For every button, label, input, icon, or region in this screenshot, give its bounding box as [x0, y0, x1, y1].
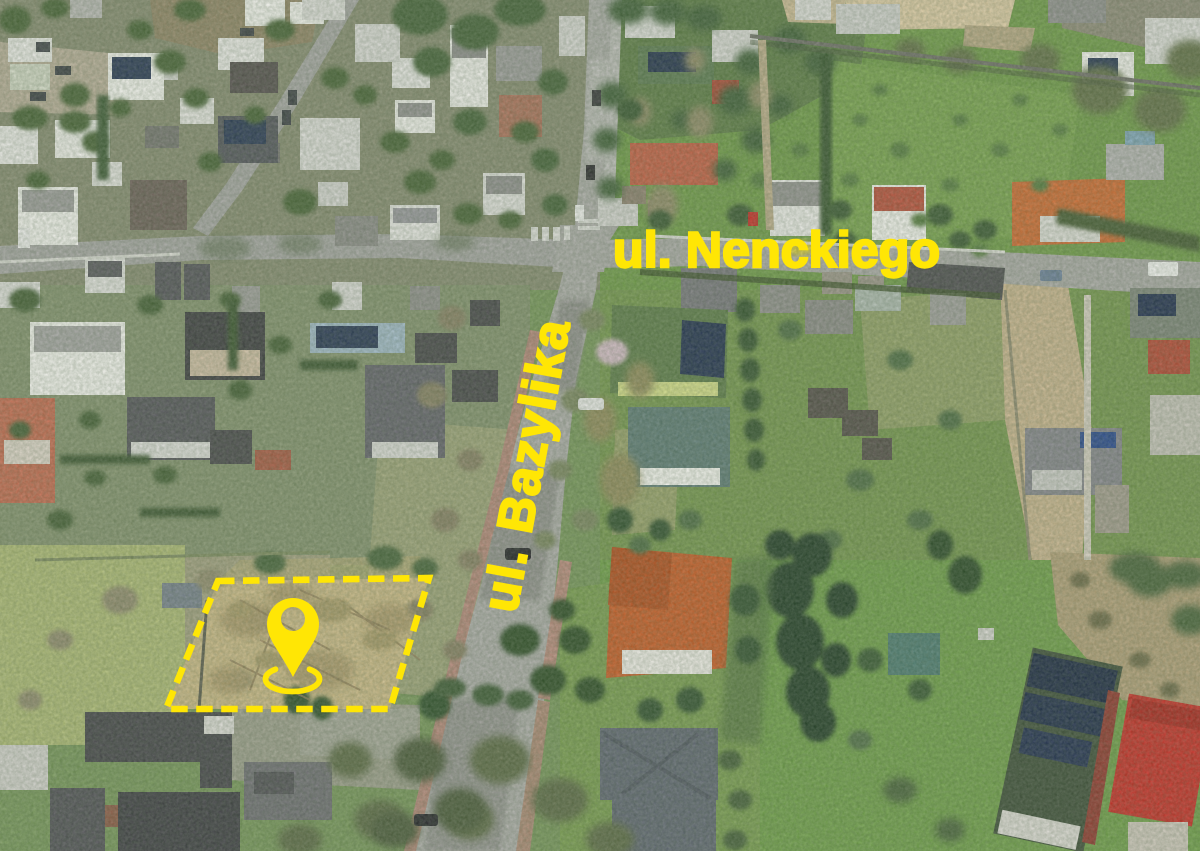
svg-text:ul. Nenckiego: ul. Nenckiego — [613, 222, 940, 278]
